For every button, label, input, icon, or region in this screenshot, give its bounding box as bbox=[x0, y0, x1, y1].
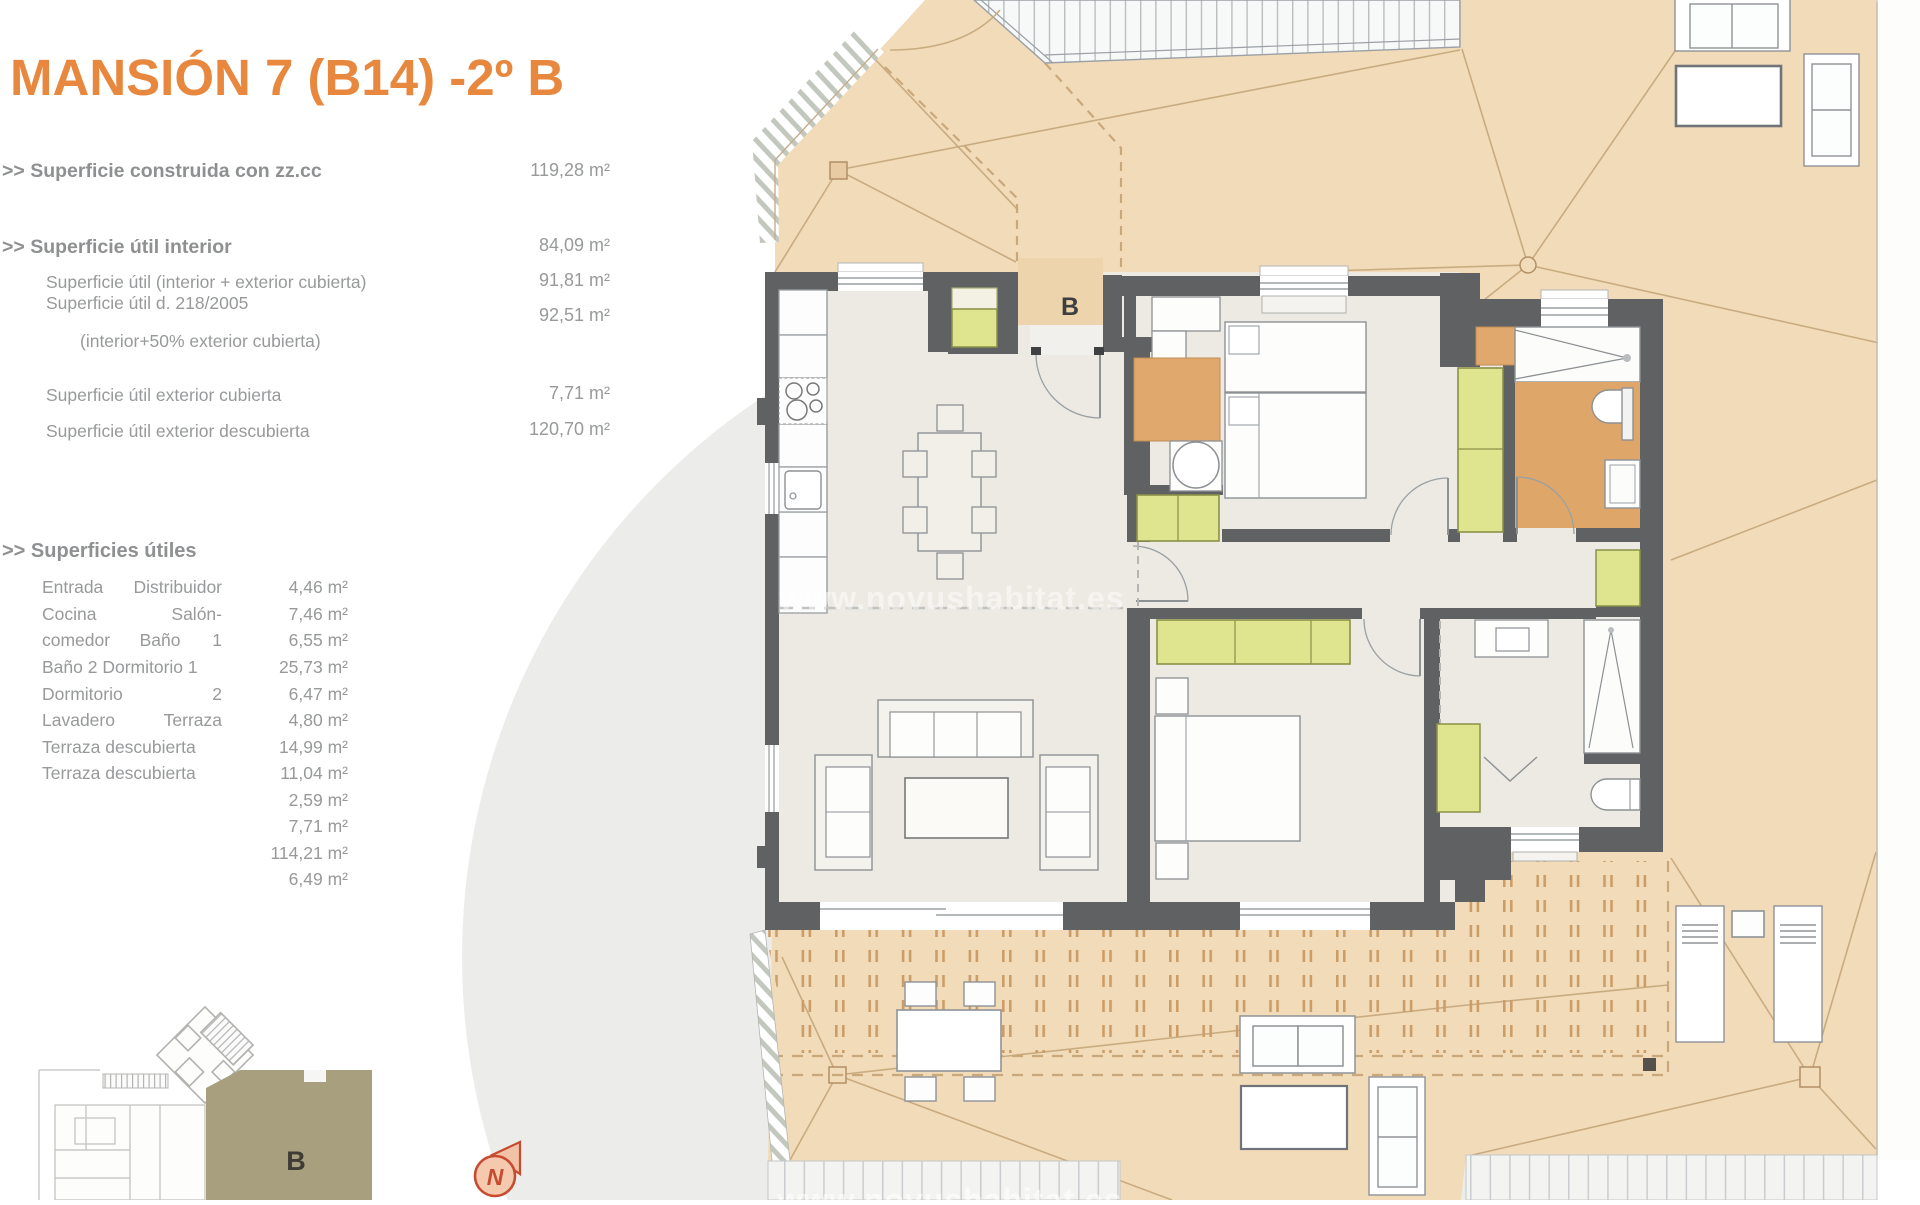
svg-text:www.novushabitat.es: www.novushabitat.es bbox=[779, 580, 1125, 616]
svg-text:84,09 m²: 84,09 m² bbox=[539, 235, 610, 255]
svg-text:25,73 m²: 25,73 m² bbox=[279, 657, 348, 677]
svg-text:91,81 m²: 91,81 m² bbox=[539, 270, 610, 290]
svg-text:Superficie útil exterior cubie: Superficie útil exterior cubierta bbox=[46, 385, 282, 405]
svg-text:B: B bbox=[286, 1146, 306, 1176]
svg-text:Cocina: Cocina bbox=[42, 604, 97, 624]
svg-text:120,70 m²: 120,70 m² bbox=[529, 419, 610, 439]
svg-text:Terraza descubierta: Terraza descubierta bbox=[42, 737, 196, 757]
svg-text:Distribuidor: Distribuidor bbox=[134, 577, 223, 597]
svg-text:>> Superficie útil interior: >> Superficie útil interior bbox=[2, 236, 232, 258]
svg-text:www.novushabitat.es: www.novushabitat.es bbox=[777, 1182, 1123, 1200]
svg-text:1: 1 bbox=[212, 630, 222, 650]
svg-text:MANSIÓN 7 (B14) -2º B: MANSIÓN 7 (B14) -2º B bbox=[10, 49, 564, 106]
svg-text:>> Superficie construida con z: >> Superficie construida con zz.cc bbox=[2, 160, 322, 182]
svg-text:4,46 m²: 4,46 m² bbox=[289, 577, 348, 597]
svg-text:14,99 m²: 14,99 m² bbox=[279, 737, 348, 757]
svg-text:11,04 m²: 11,04 m² bbox=[280, 763, 348, 783]
svg-text:Entrada: Entrada bbox=[42, 577, 104, 597]
svg-text:N: N bbox=[487, 1164, 504, 1190]
svg-text:(interior+50% exterior cubiert: (interior+50% exterior cubierta) bbox=[80, 331, 321, 351]
svg-text:Baño 2 Dormitorio 1: Baño 2 Dormitorio 1 bbox=[42, 657, 198, 677]
svg-text:2,59 m²: 2,59 m² bbox=[289, 790, 348, 810]
svg-text:7,46 m²: 7,46 m² bbox=[289, 604, 348, 624]
svg-text:Lavadero: Lavadero bbox=[42, 710, 115, 730]
svg-text:6,55 m²: 6,55 m² bbox=[289, 630, 348, 650]
svg-text:Baño: Baño bbox=[140, 630, 181, 650]
svg-text:119,28 m²: 119,28 m² bbox=[530, 160, 610, 180]
svg-text:Terraza descubierta: Terraza descubierta bbox=[42, 763, 196, 783]
svg-text:2: 2 bbox=[212, 684, 222, 704]
svg-text:4,80 m²: 4,80 m² bbox=[289, 710, 348, 730]
svg-text:Dormitorio: Dormitorio bbox=[42, 684, 123, 704]
svg-text:7,71 m²: 7,71 m² bbox=[549, 383, 610, 403]
svg-text:Superficie útil d. 218/2005: Superficie útil d. 218/2005 bbox=[46, 293, 248, 313]
svg-text:Salón-: Salón- bbox=[171, 604, 222, 624]
svg-text:comedor: comedor bbox=[42, 630, 110, 650]
svg-text:92,51 m²: 92,51 m² bbox=[539, 305, 610, 325]
svg-text:114,21 m²: 114,21 m² bbox=[271, 843, 349, 863]
svg-text:6,47 m²: 6,47 m² bbox=[289, 684, 348, 704]
svg-text:Superficie útil (interior + ex: Superficie útil (interior + exterior cub… bbox=[46, 272, 366, 292]
svg-text:>> Superficies útiles: >> Superficies útiles bbox=[2, 540, 197, 562]
svg-text:7,71 m²: 7,71 m² bbox=[289, 816, 348, 836]
svg-text:Superficie útil exterior descu: Superficie útil exterior descubierta bbox=[46, 421, 310, 441]
svg-text:Terraza: Terraza bbox=[164, 710, 223, 730]
svg-text:6,49 m²: 6,49 m² bbox=[289, 869, 348, 889]
svg-text:B: B bbox=[1061, 293, 1079, 321]
